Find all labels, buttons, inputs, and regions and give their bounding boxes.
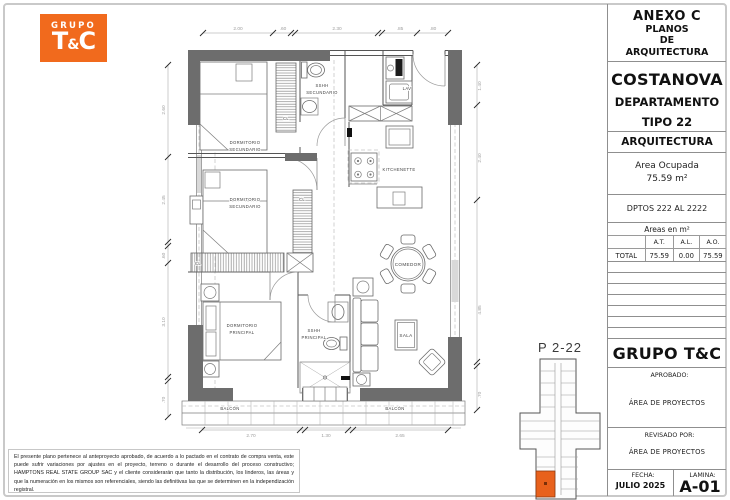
empty-row	[608, 284, 726, 295]
dim-top-5: .80	[430, 26, 437, 32]
room-label-dorm-sec2-1: DORMITORIO	[230, 197, 261, 202]
empty-row	[608, 295, 726, 306]
dim-left-5: .70	[161, 396, 167, 403]
room-label-dorm-ppal-1: DORMITORIO	[227, 323, 258, 328]
sheet-cell: LAMINA: A-01	[673, 470, 726, 496]
room-label-sshh-ppal-1: SSHH	[307, 328, 320, 333]
room-label-dorm-sec1-2: SECUNDARIO	[229, 147, 261, 152]
kitchenette: KITCHENETTE	[348, 106, 422, 208]
disclaimer-text: El presente plano pertenece al anteproye…	[8, 449, 300, 493]
dim-top-2: .60	[280, 26, 287, 32]
room-label-balcon-1: BALCÓN	[220, 406, 239, 411]
areas-table-row-total: TOTAL 75.59 0.00 75.59	[608, 249, 726, 262]
floor-plan: CL CL CL SSHH SECUNDARIO LAV	[150, 10, 490, 450]
project-section: COSTANOVA DEPARTAMENTO TIPO 22	[608, 62, 726, 132]
closet-label-2: CL	[299, 197, 305, 202]
plan-sheet: GRUPO T&C	[0, 0, 730, 500]
date-value: JULIO 2025	[608, 481, 673, 490]
areas-col-0	[608, 236, 645, 248]
areas-col-ao: A.O.	[699, 236, 726, 248]
empty-row	[608, 328, 726, 339]
empty-row	[608, 262, 726, 273]
unit-line1: DEPARTAMENTO	[608, 95, 726, 109]
room-label-sshh-ppal-2: PRINCIPAL	[302, 335, 327, 340]
dim-bottom-3: 2.65	[395, 433, 405, 439]
area-section: Area Ocupada 75.59 m²	[608, 153, 726, 195]
room-label-dorm-sec1-1: DORMITORIO	[230, 140, 261, 145]
room-label-kitchenette: KITCHENETTE	[383, 167, 416, 172]
room-label-comedor: COMEDOR	[395, 262, 422, 267]
areas-col-at: A.T.	[645, 236, 673, 248]
balcony-labels: BALCÓN BALCÓN	[220, 406, 404, 411]
bedroom-secondary-1: DORMITORIO SECUNDARIO	[200, 62, 267, 152]
project-name: COSTANOVA	[608, 70, 726, 89]
dim-top-1: 2.00	[233, 26, 243, 32]
title-block: ANEXO C PLANOS DE ARQUITECTURA COSTANOVA…	[607, 4, 726, 496]
areas-col-al: A.L.	[673, 236, 699, 248]
dim-right-1: 1.40	[477, 81, 483, 91]
dim-bottom-2: 1.30	[321, 433, 331, 439]
closet-label-1: CL	[283, 116, 289, 121]
dptos-range: DPTOS 222 AL 2222	[608, 195, 726, 223]
dim-right-2: 2.40	[477, 153, 483, 163]
areas-total-al: 0.00	[673, 249, 699, 262]
dim-left-4: 3.10	[161, 317, 167, 327]
dim-top-4: .85	[397, 26, 404, 32]
annex-title: ANEXO C	[608, 9, 726, 24]
key-plan: P 2-22	[512, 340, 608, 500]
areas-table-title: Areas en m²	[608, 223, 726, 236]
empty-row	[608, 317, 726, 328]
dim-left-3: .60	[161, 252, 167, 259]
areas-table-header: A.T. A.L. A.O.	[608, 236, 726, 249]
living-room: SALA	[353, 278, 446, 386]
sheet-number: A-01	[674, 479, 726, 495]
room-label-sshh-sec-2: SECUNDARIO	[306, 90, 338, 95]
area-value: 75.59 m²	[608, 173, 726, 186]
dining: COMEDOR	[379, 235, 436, 293]
annex-sub3: ARQUITECTURA	[608, 47, 726, 58]
empty-row	[608, 273, 726, 284]
areas-table: Areas en m² A.T. A.L. A.O. TOTAL 75.59 0…	[608, 223, 726, 262]
approved-value: ÁREA DE PROYECTOS	[608, 399, 726, 407]
dim-right-4: .70	[477, 391, 483, 398]
bathroom-secondary: SSHH SECUNDARIO	[301, 62, 345, 146]
room-label-dorm-ppal-2: PRINCIPAL	[230, 330, 255, 335]
bedroom-main: DORMITORIO PRINCIPAL	[201, 272, 298, 377]
date-label: FECHA:	[613, 472, 673, 479]
laundry: LAV	[386, 57, 412, 103]
window-right	[451, 123, 460, 339]
date-cell: FECHA: JULIO 2025	[608, 470, 673, 496]
empty-row	[608, 306, 726, 317]
room-label-sala: SALA	[399, 333, 413, 338]
entry-door	[413, 54, 445, 86]
approved-section: APROBADO: ÁREA DE PROYECTOS	[608, 368, 726, 428]
key-plan-drawing	[512, 355, 608, 500]
company-name: GRUPO T&C	[608, 339, 726, 368]
footer-section: FECHA: JULIO 2025 LAMINA: A-01	[608, 470, 726, 496]
areas-total-label: TOTAL	[608, 249, 645, 262]
dim-bottom-1: 2.70	[246, 433, 256, 439]
areas-total-ao: 75.59	[699, 249, 726, 262]
reviewed-section: REVISADO POR: ÁREA DE PROYECTOS	[608, 428, 726, 470]
room-label-lav: LAV	[403, 86, 412, 91]
reviewed-value: ÁREA DE PROYECTOS	[608, 448, 726, 456]
dim-top-3: 2.30	[332, 26, 342, 32]
room-label-sshh-sec-1: SSHH	[315, 83, 328, 88]
room-label-dorm-sec2-2: SECUNDARIO	[229, 204, 261, 209]
closet-label-3: CL	[195, 261, 201, 266]
areas-total-at: 75.59	[645, 249, 673, 262]
dim-left-2: 2.45	[161, 195, 167, 205]
dim-right-3: 4.85	[477, 305, 483, 315]
company-logo: GRUPO T&C	[40, 14, 107, 62]
annex-sub1: PLANOS	[608, 24, 726, 35]
area-label: Area Ocupada	[608, 160, 726, 173]
logo-grupo-text: GRUPO	[40, 21, 107, 31]
annex-section: ANEXO C PLANOS DE ARQUITECTURA	[608, 4, 726, 62]
reviewed-label: REVISADO POR:	[613, 432, 726, 439]
discipline-label: ARQUITECTURA	[608, 132, 726, 153]
room-label-balcon-2: BALCÓN	[385, 406, 404, 411]
approved-label: APROBADO:	[613, 372, 726, 379]
dim-left-1: 2.60	[161, 105, 167, 115]
annex-sub2: DE	[608, 35, 726, 46]
logo-brand-text: T&C	[40, 31, 107, 52]
unit-line2: TIPO 22	[608, 115, 726, 129]
key-plan-title: P 2-22	[512, 340, 608, 355]
